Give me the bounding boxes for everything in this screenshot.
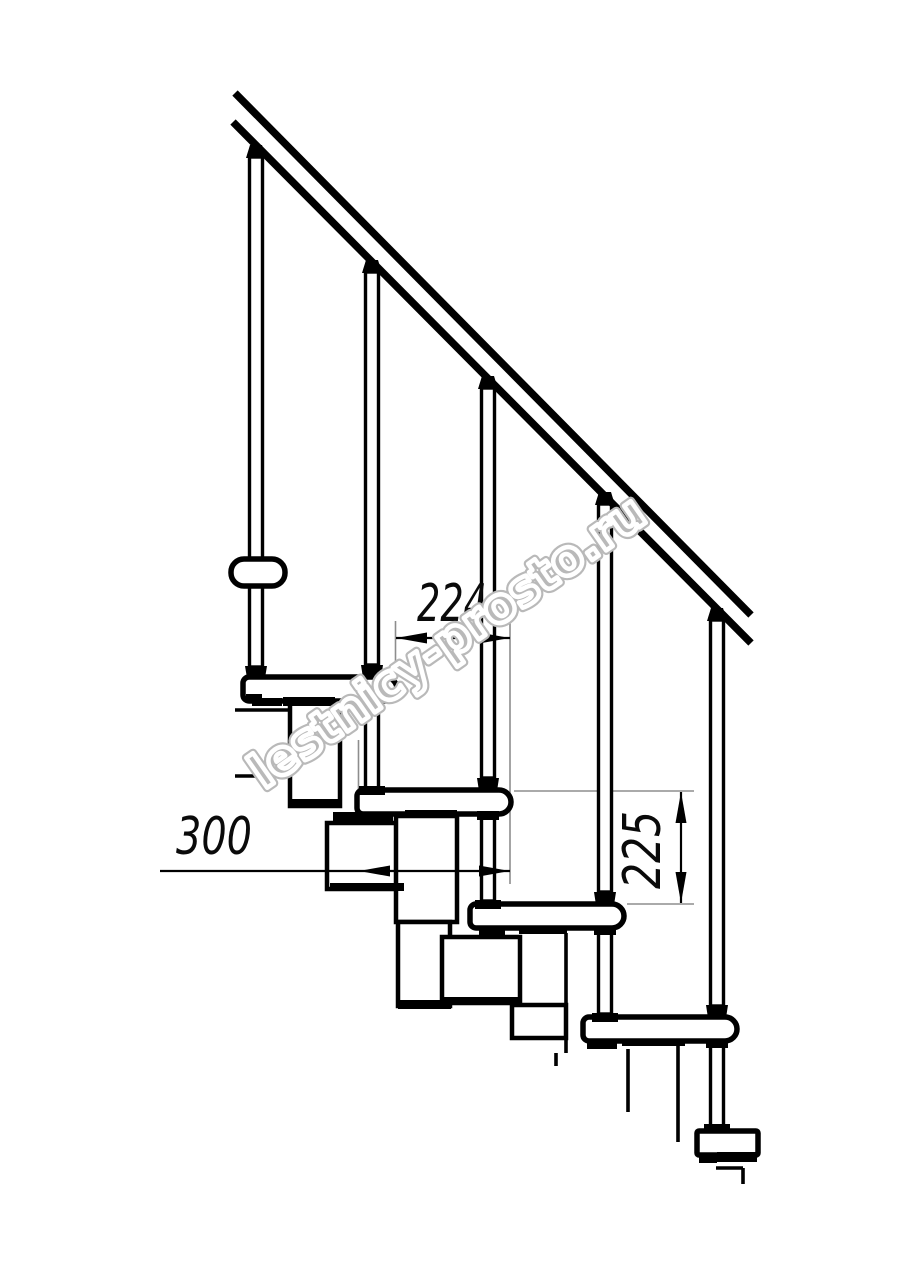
support-rod-5	[711, 1040, 724, 1127]
module-cut-lines-2	[628, 1045, 678, 1142]
module-box-3	[396, 816, 457, 922]
baluster-1-collar	[245, 666, 267, 678]
module-cut-lines-3	[716, 1168, 743, 1184]
clamp-under-tread-3-b	[519, 927, 567, 934]
baluster-2	[366, 272, 379, 665]
handrail-bracket	[231, 559, 285, 586]
clamp-under-tread-5-b	[717, 1152, 757, 1162]
baluster-5-collar	[706, 1005, 728, 1018]
clamp-under-tread-1-b	[252, 698, 282, 706]
clamp-rod-5-top	[706, 1039, 728, 1048]
baluster-5	[711, 620, 724, 1006]
clamp-under-tread-5-a	[699, 1155, 717, 1163]
dimension-label-300: 300	[176, 807, 252, 867]
staircase-technical-drawing: 224 300 225 lestnicy-prosto.ru lestnicy-…	[0, 0, 914, 1280]
flange-module-4-bottom	[398, 1000, 451, 1009]
clamp-under-tread-4-a	[587, 1041, 617, 1049]
flange-module-2	[333, 812, 393, 821]
support-rod-4	[599, 927, 612, 1014]
dimension-label-225: 225	[613, 811, 673, 889]
module-box-5	[442, 937, 520, 1003]
tread-5-partial	[697, 1131, 758, 1155]
clamp-under-tread-3-a	[479, 927, 505, 935]
baluster-4-collar	[594, 892, 616, 905]
flange-module-1-bottom	[290, 799, 340, 807]
baluster-1	[250, 157, 263, 667]
cap-rod-3-bottom	[475, 900, 501, 909]
cap-rod-5-bottom	[704, 1124, 730, 1133]
baluster-3-collar	[477, 778, 499, 791]
support-rod-3	[482, 813, 495, 901]
dim-arrow-up-225	[676, 792, 687, 823]
flange-module-5-bottom	[444, 997, 518, 1004]
cap-rod-2-bottom	[359, 786, 385, 795]
flange-module-3	[405, 810, 457, 817]
module-box-6	[512, 1005, 566, 1038]
clamp-rod-4-top	[594, 926, 616, 935]
dim-arrow-down-225	[676, 872, 687, 903]
cap-rod-4-bottom	[592, 1013, 618, 1022]
dimension-step-rise: 225	[613, 792, 687, 903]
clamp-rod-3-top	[477, 811, 499, 820]
watermark-text-core: lestnicy-prosto.ru	[239, 484, 656, 799]
clamp-under-tread-4-b	[622, 1040, 685, 1046]
flange-module-2-bottom	[330, 883, 404, 891]
module-cut-lines-1	[556, 933, 566, 1066]
watermark: lestnicy-prosto.ru lestnicy-prosto.ru	[239, 484, 656, 799]
